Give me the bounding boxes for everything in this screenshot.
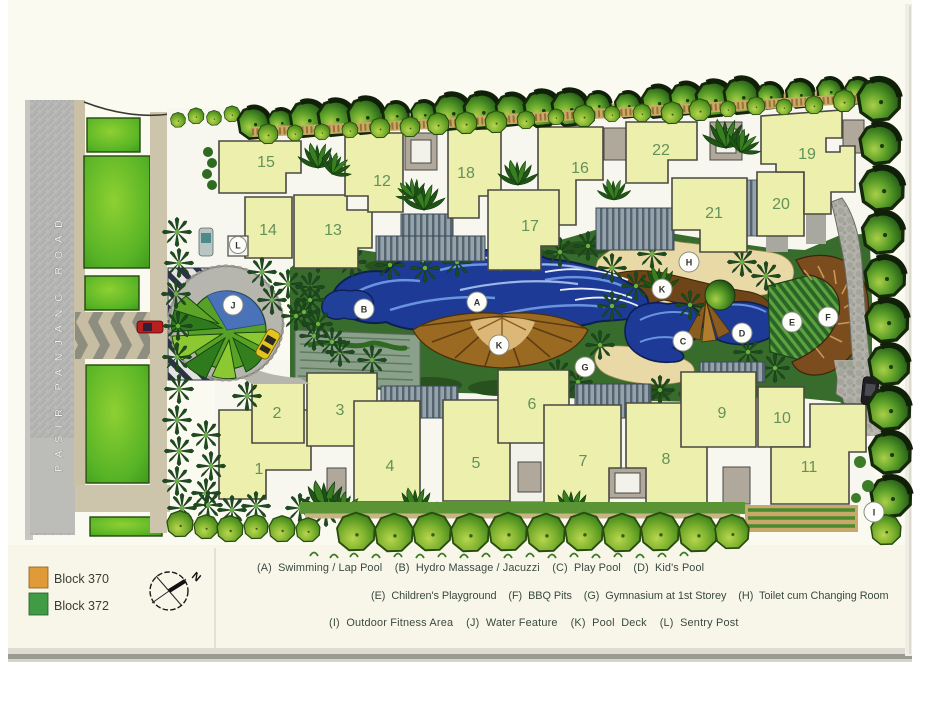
svg-text:5: 5 — [472, 455, 481, 472]
svg-text:6: 6 — [528, 396, 537, 413]
svg-text:B: B — [361, 305, 368, 315]
svg-text:8: 8 — [662, 451, 671, 468]
svg-text:19: 19 — [798, 146, 816, 163]
svg-text:21: 21 — [705, 205, 723, 222]
svg-text:J: J — [230, 301, 235, 311]
svg-text:11: 11 — [801, 459, 818, 476]
svg-text:Block 370: Block 370 — [54, 572, 109, 586]
svg-text:15: 15 — [257, 154, 275, 171]
svg-text:22: 22 — [652, 142, 670, 159]
svg-text:1: 1 — [255, 461, 264, 478]
svg-text:K: K — [659, 285, 666, 295]
svg-text:L: L — [235, 241, 241, 251]
svg-text:(I) Outdoor Fitness Area (: (I) Outdoor Fitness Area (J) Water Featu… — [329, 617, 739, 629]
svg-text:18: 18 — [457, 165, 475, 182]
svg-text:17: 17 — [521, 218, 539, 235]
svg-text:A: A — [474, 298, 481, 308]
svg-text:K: K — [496, 341, 503, 351]
svg-text:10: 10 — [773, 410, 791, 427]
svg-text:(E) Children's Playground: (E) Children's Playground (F) BBQ Pits (… — [371, 590, 889, 602]
svg-text:4: 4 — [386, 458, 395, 475]
svg-text:7: 7 — [579, 453, 588, 470]
svg-text:16: 16 — [571, 160, 589, 177]
svg-text:2: 2 — [273, 405, 282, 422]
svg-text:12: 12 — [373, 173, 391, 190]
svg-text:E: E — [789, 318, 795, 328]
svg-text:C: C — [680, 337, 687, 347]
svg-text:9: 9 — [718, 405, 727, 422]
svg-text:3: 3 — [336, 402, 345, 419]
svg-text:I: I — [873, 508, 876, 518]
svg-text:(A) Swimming / Lap Pool (B: (A) Swimming / Lap Pool (B) Hydro Massag… — [257, 562, 704, 574]
svg-text:D: D — [739, 329, 746, 339]
svg-text:20: 20 — [772, 196, 790, 213]
svg-text:H: H — [686, 258, 693, 268]
svg-text:13: 13 — [324, 222, 342, 239]
svg-text:G: G — [581, 363, 588, 373]
svg-text:14: 14 — [259, 222, 277, 239]
svg-text:F: F — [825, 313, 831, 323]
svg-text:Block 372: Block 372 — [54, 599, 109, 613]
svg-text:PASIR PANJANG ROAD: PASIR PANJANG ROAD — [53, 212, 65, 472]
